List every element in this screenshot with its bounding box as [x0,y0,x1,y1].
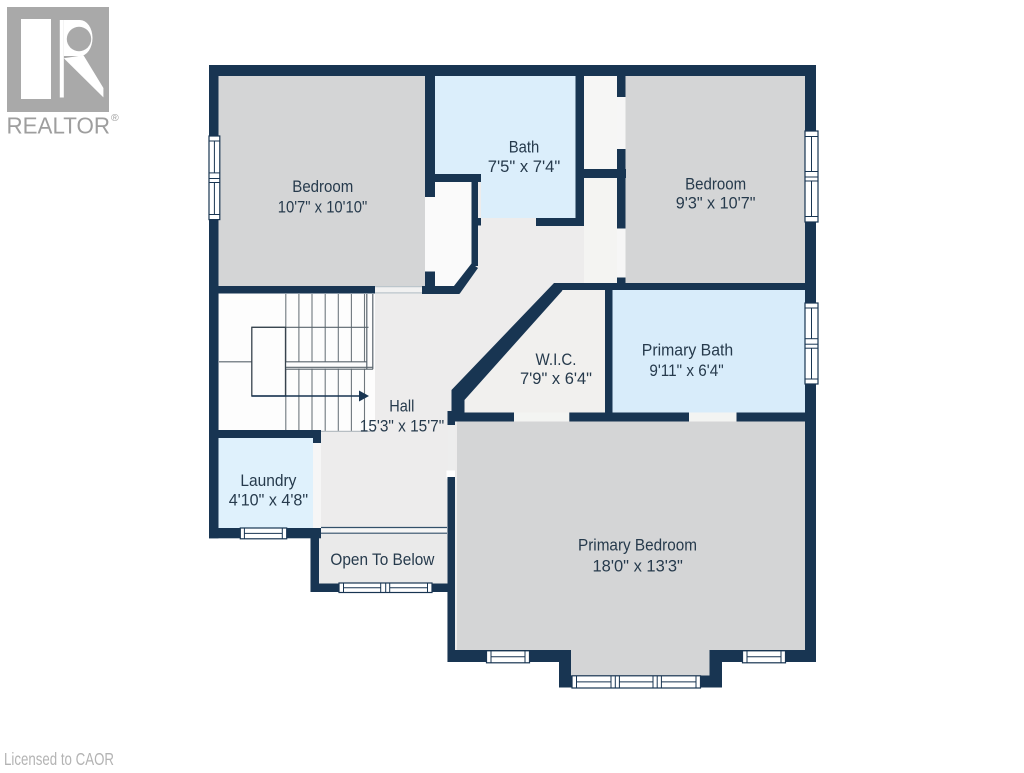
svg-text:®: ® [111,112,119,124]
svg-text:Primary Bedroom: Primary Bedroom [578,535,697,554]
svg-text:Bedroom: Bedroom [292,177,353,196]
svg-text:Bedroom: Bedroom [685,175,746,194]
svg-text:Laundry: Laundry [240,471,296,490]
svg-text:18'0" x 13'3": 18'0" x 13'3" [593,557,683,576]
svg-text:10'7" x 10'10": 10'7" x 10'10" [278,198,368,217]
svg-text:15'3" x 15'7": 15'3" x 15'7" [360,417,444,436]
svg-text:7'9" x 6'4": 7'9" x 6'4" [520,369,592,388]
svg-text:W.I.C.: W.I.C. [536,350,577,369]
svg-text:Primary Bath: Primary Bath [642,341,733,360]
svg-text:Bath: Bath [509,137,540,156]
svg-text:Hall: Hall [389,397,414,416]
svg-text:REALTOR: REALTOR [7,113,111,139]
svg-text:4'10" x 4'8": 4'10" x 4'8" [229,491,308,510]
svg-text:Open To Below: Open To Below [330,550,435,569]
svg-text:9'3" x 10'7": 9'3" x 10'7" [676,193,756,212]
svg-text:Licensed to CAOR: Licensed to CAOR [4,749,114,768]
svg-text:7'5" x 7'4": 7'5" x 7'4" [488,157,561,176]
svg-text:9'11" x 6'4": 9'11" x 6'4" [649,361,723,380]
